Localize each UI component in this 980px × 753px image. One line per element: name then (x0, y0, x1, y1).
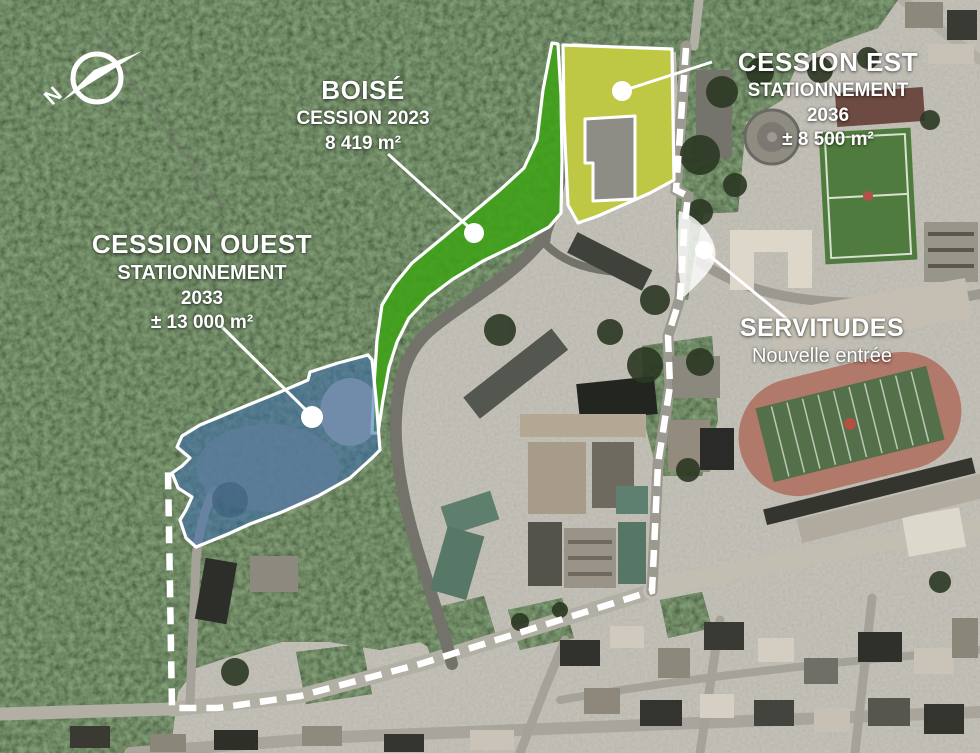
boise-label: BOISÉ CESSION 2023 8 419 m² (296, 74, 429, 156)
cession-est-line-3: ± 8 500 m² (738, 128, 918, 152)
cession-ouest-line-3: ± 13 000 m² (92, 311, 312, 335)
servitudes-line-1: Nouvelle entrée (740, 344, 904, 370)
boise-title: BOISÉ (296, 74, 429, 107)
cession-ouest-marker-dot (301, 406, 323, 428)
boise-line-1: CESSION 2023 (296, 107, 429, 131)
servitudes-marker-dot (695, 241, 713, 259)
cession-est-line-2: 2036 (738, 104, 918, 128)
cession-ouest-line-2: 2033 (92, 287, 312, 311)
cession-est-marker-dot (612, 81, 632, 101)
cession-ouest-title: CESSION OUEST (92, 228, 312, 261)
cession-ouest-line-1: STATIONNEMENT (92, 261, 312, 287)
parking-notch (585, 116, 635, 201)
cession-est-line-1: STATIONNEMENT (738, 79, 918, 103)
servitudes-title: SERVITUDES (740, 312, 904, 344)
servitudes-label: SERVITUDES Nouvelle entrée (740, 312, 904, 370)
boise-line-2: 8 419 m² (296, 132, 429, 156)
cession-est-label: CESSION EST STATIONNEMENT 2036 ± 8 500 m… (738, 46, 918, 152)
boise-marker-dot (464, 223, 484, 243)
cession-ouest-label: CESSION OUEST STATIONNEMENT 2033 ± 13 00… (92, 228, 312, 335)
cession-plan-map: N BOISÉ CESSION 2023 8 419 m² CESSION ES… (0, 0, 980, 753)
cession-est-title: CESSION EST (738, 46, 918, 79)
